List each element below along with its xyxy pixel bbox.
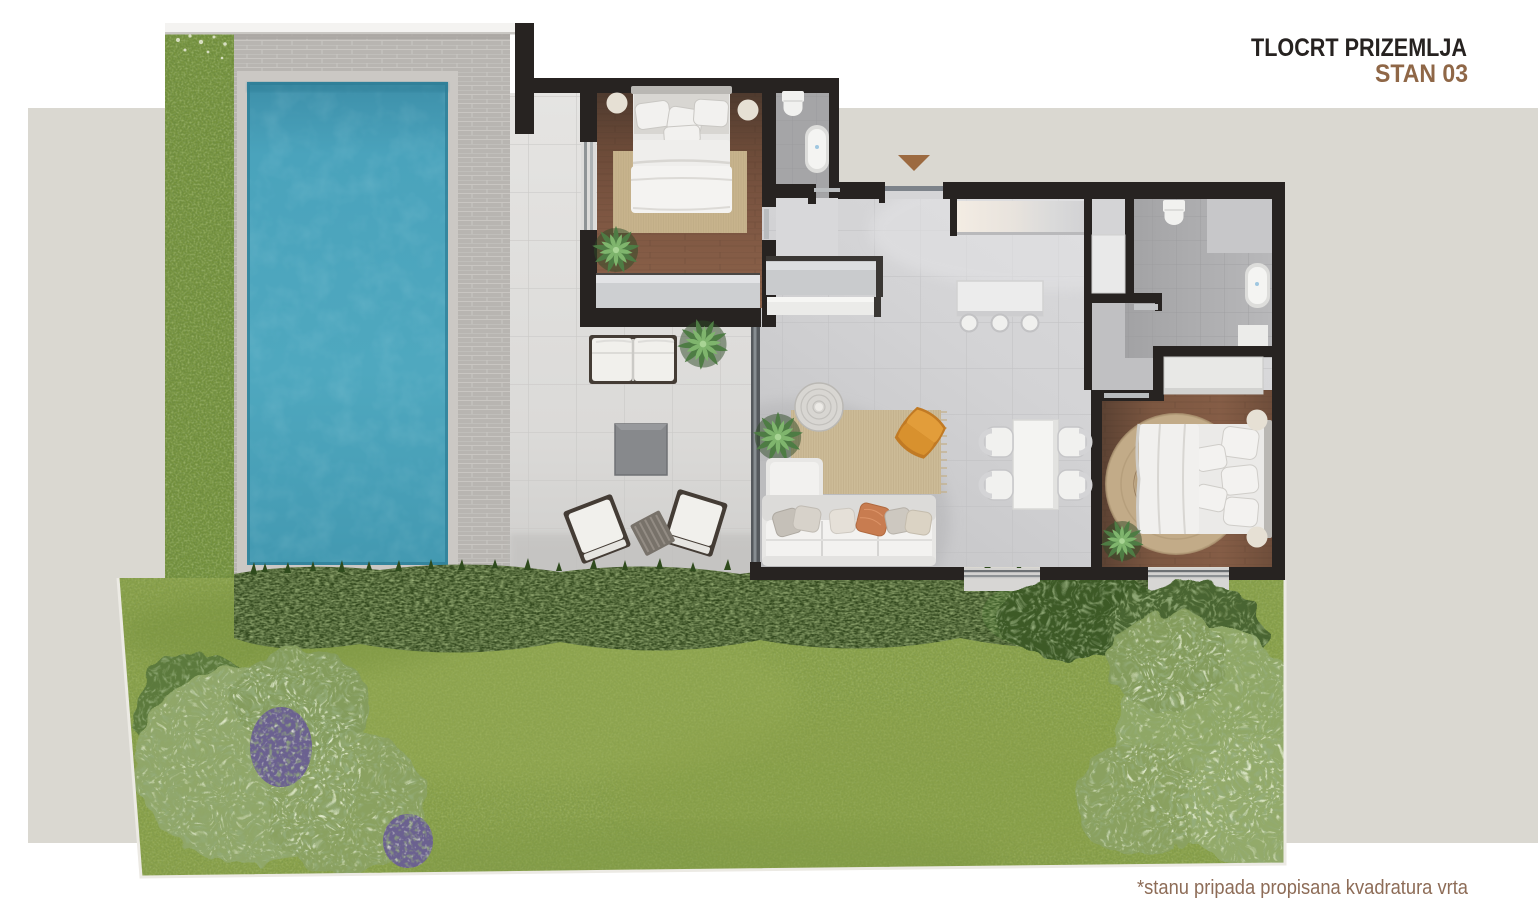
svg-text:STAN 03: STAN 03: [1375, 60, 1468, 88]
svg-text:*stanu pripada propisana kvadr: *stanu pripada propisana kvadratura vrta: [1137, 877, 1469, 899]
svg-text:TLOCRT PRIZEMLJA: TLOCRT PRIZEMLJA: [1251, 34, 1467, 62]
